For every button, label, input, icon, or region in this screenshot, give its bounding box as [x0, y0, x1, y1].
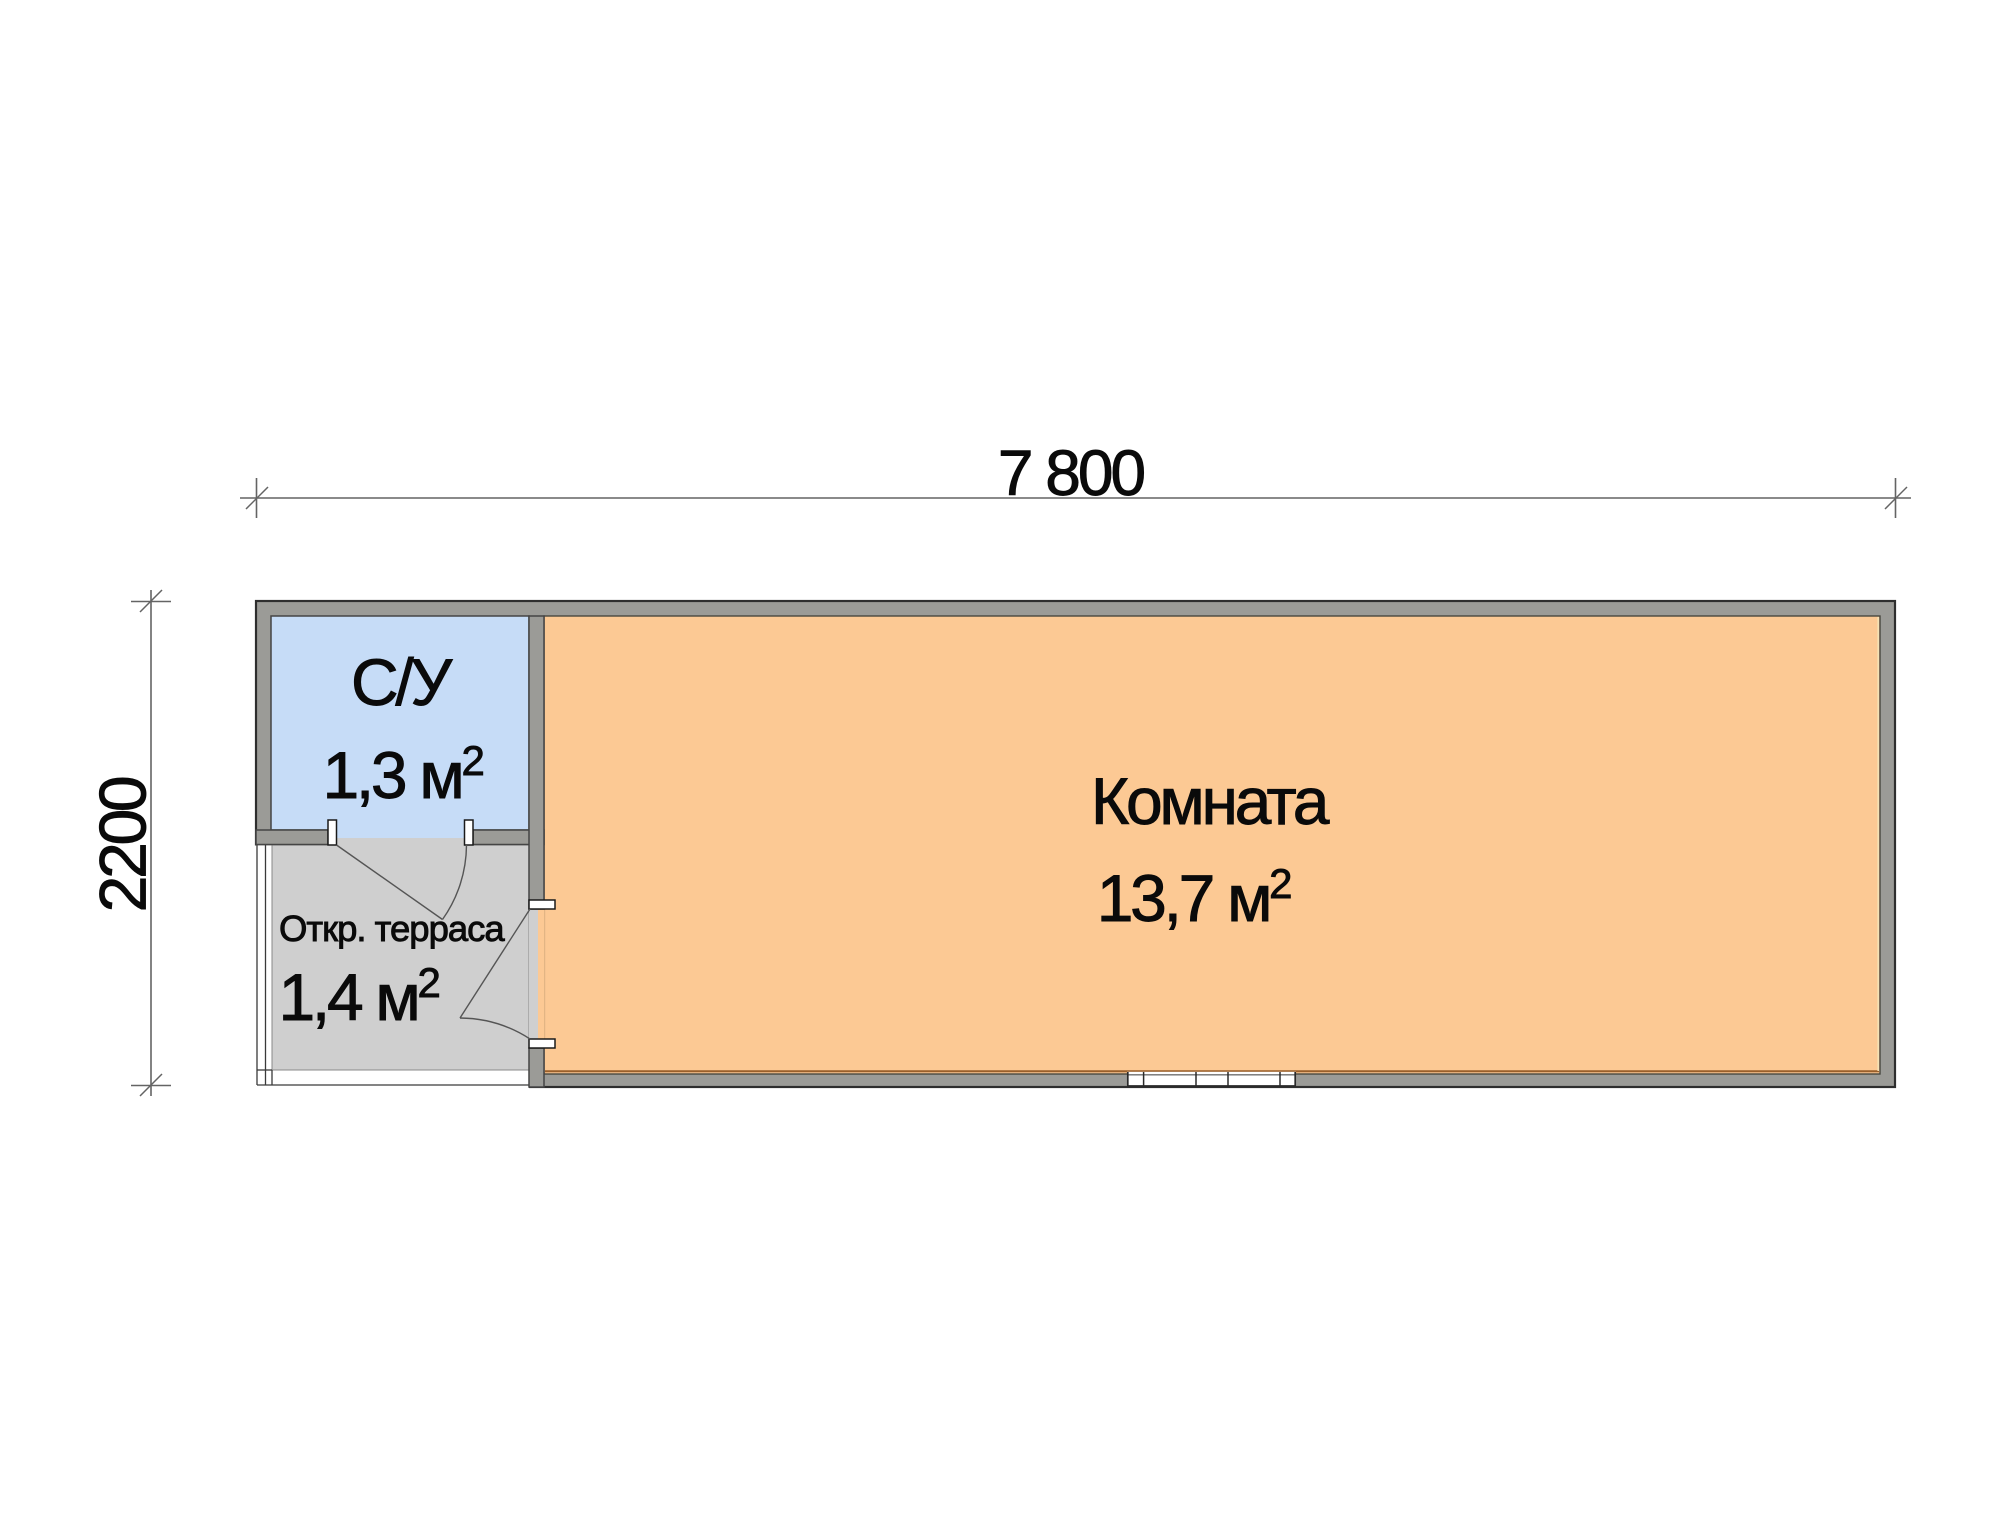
svg-text:1,3 м2: 1,3 м2 — [322, 737, 483, 812]
svg-text:Комната: Комната — [1091, 764, 1330, 838]
svg-text:С/У: С/У — [351, 645, 453, 719]
svg-text:2200: 2200 — [86, 777, 160, 912]
svg-text:Откр. терраса: Откр. терраса — [279, 908, 505, 949]
svg-text:13,7 м2: 13,7 м2 — [1097, 860, 1291, 935]
svg-text:1,4 м2: 1,4 м2 — [279, 959, 440, 1034]
svg-text:7 800: 7 800 — [998, 437, 1145, 509]
